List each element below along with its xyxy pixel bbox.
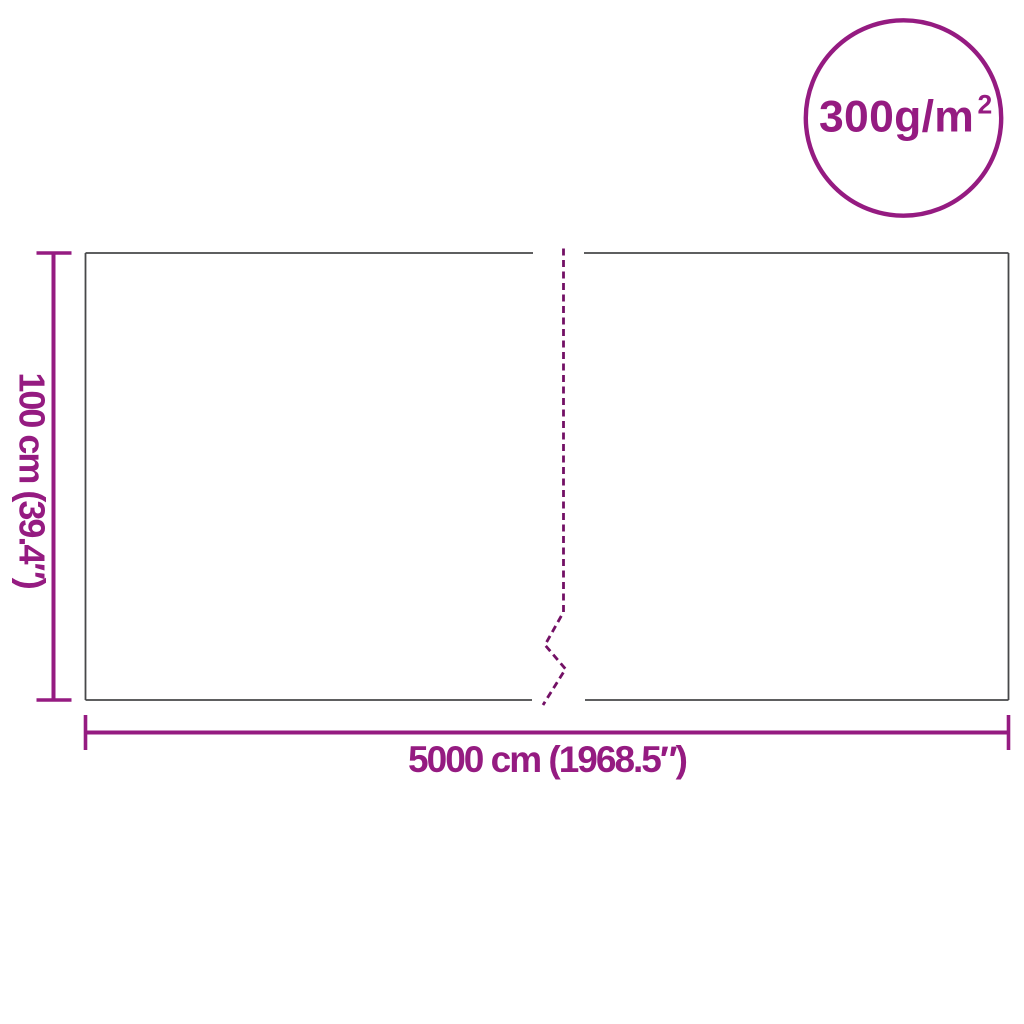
svg-text:300g/m: 300g/m bbox=[819, 93, 974, 142]
svg-text:2: 2 bbox=[978, 90, 993, 120]
svg-text:5000 cm (1968.5″): 5000 cm (1968.5″) bbox=[408, 739, 687, 780]
svg-text:100 cm (39.4″): 100 cm (39.4″) bbox=[12, 372, 53, 588]
